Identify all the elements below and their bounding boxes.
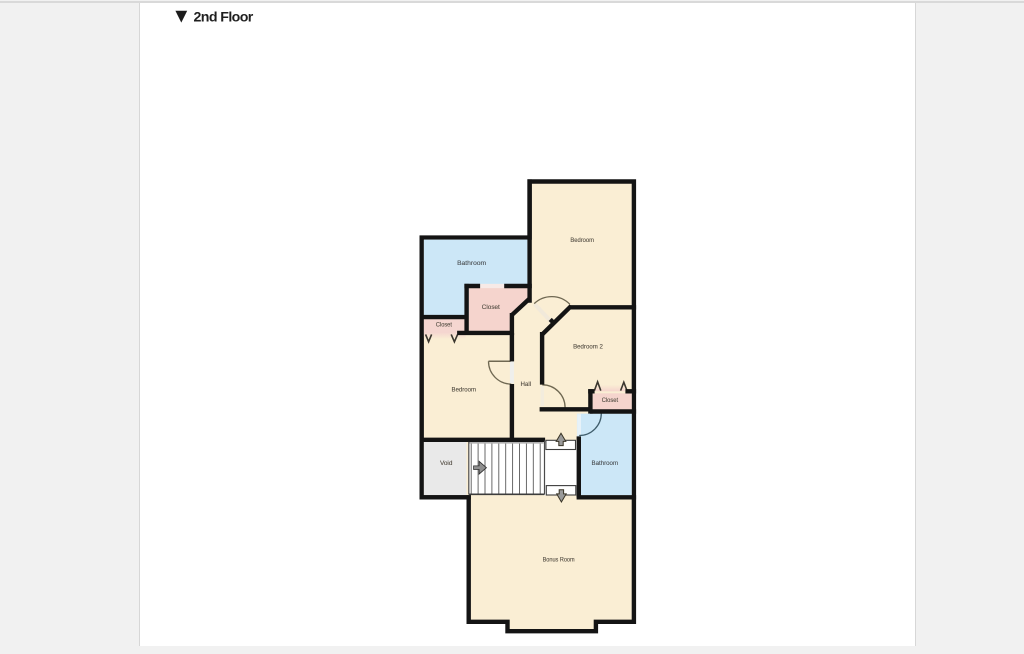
svg-text:Closet: Closet bbox=[436, 321, 452, 328]
svg-text:Bedroom 2: Bedroom 2 bbox=[573, 344, 603, 351]
svg-text:Bonus Room: Bonus Room bbox=[543, 557, 575, 564]
svg-text:Closet: Closet bbox=[482, 304, 500, 311]
svg-text:2nd Floor: 2nd Floor bbox=[194, 10, 254, 26]
svg-text:Void: Void bbox=[440, 460, 453, 467]
svg-text:Hall: Hall bbox=[520, 381, 531, 388]
svg-text:Bathroom: Bathroom bbox=[457, 260, 486, 267]
svg-text:Bedroom: Bedroom bbox=[452, 386, 477, 393]
svg-text:Closet: Closet bbox=[602, 397, 618, 404]
svg-text:Bedroom: Bedroom bbox=[570, 237, 594, 244]
svg-text:Bathroom: Bathroom bbox=[592, 460, 619, 467]
